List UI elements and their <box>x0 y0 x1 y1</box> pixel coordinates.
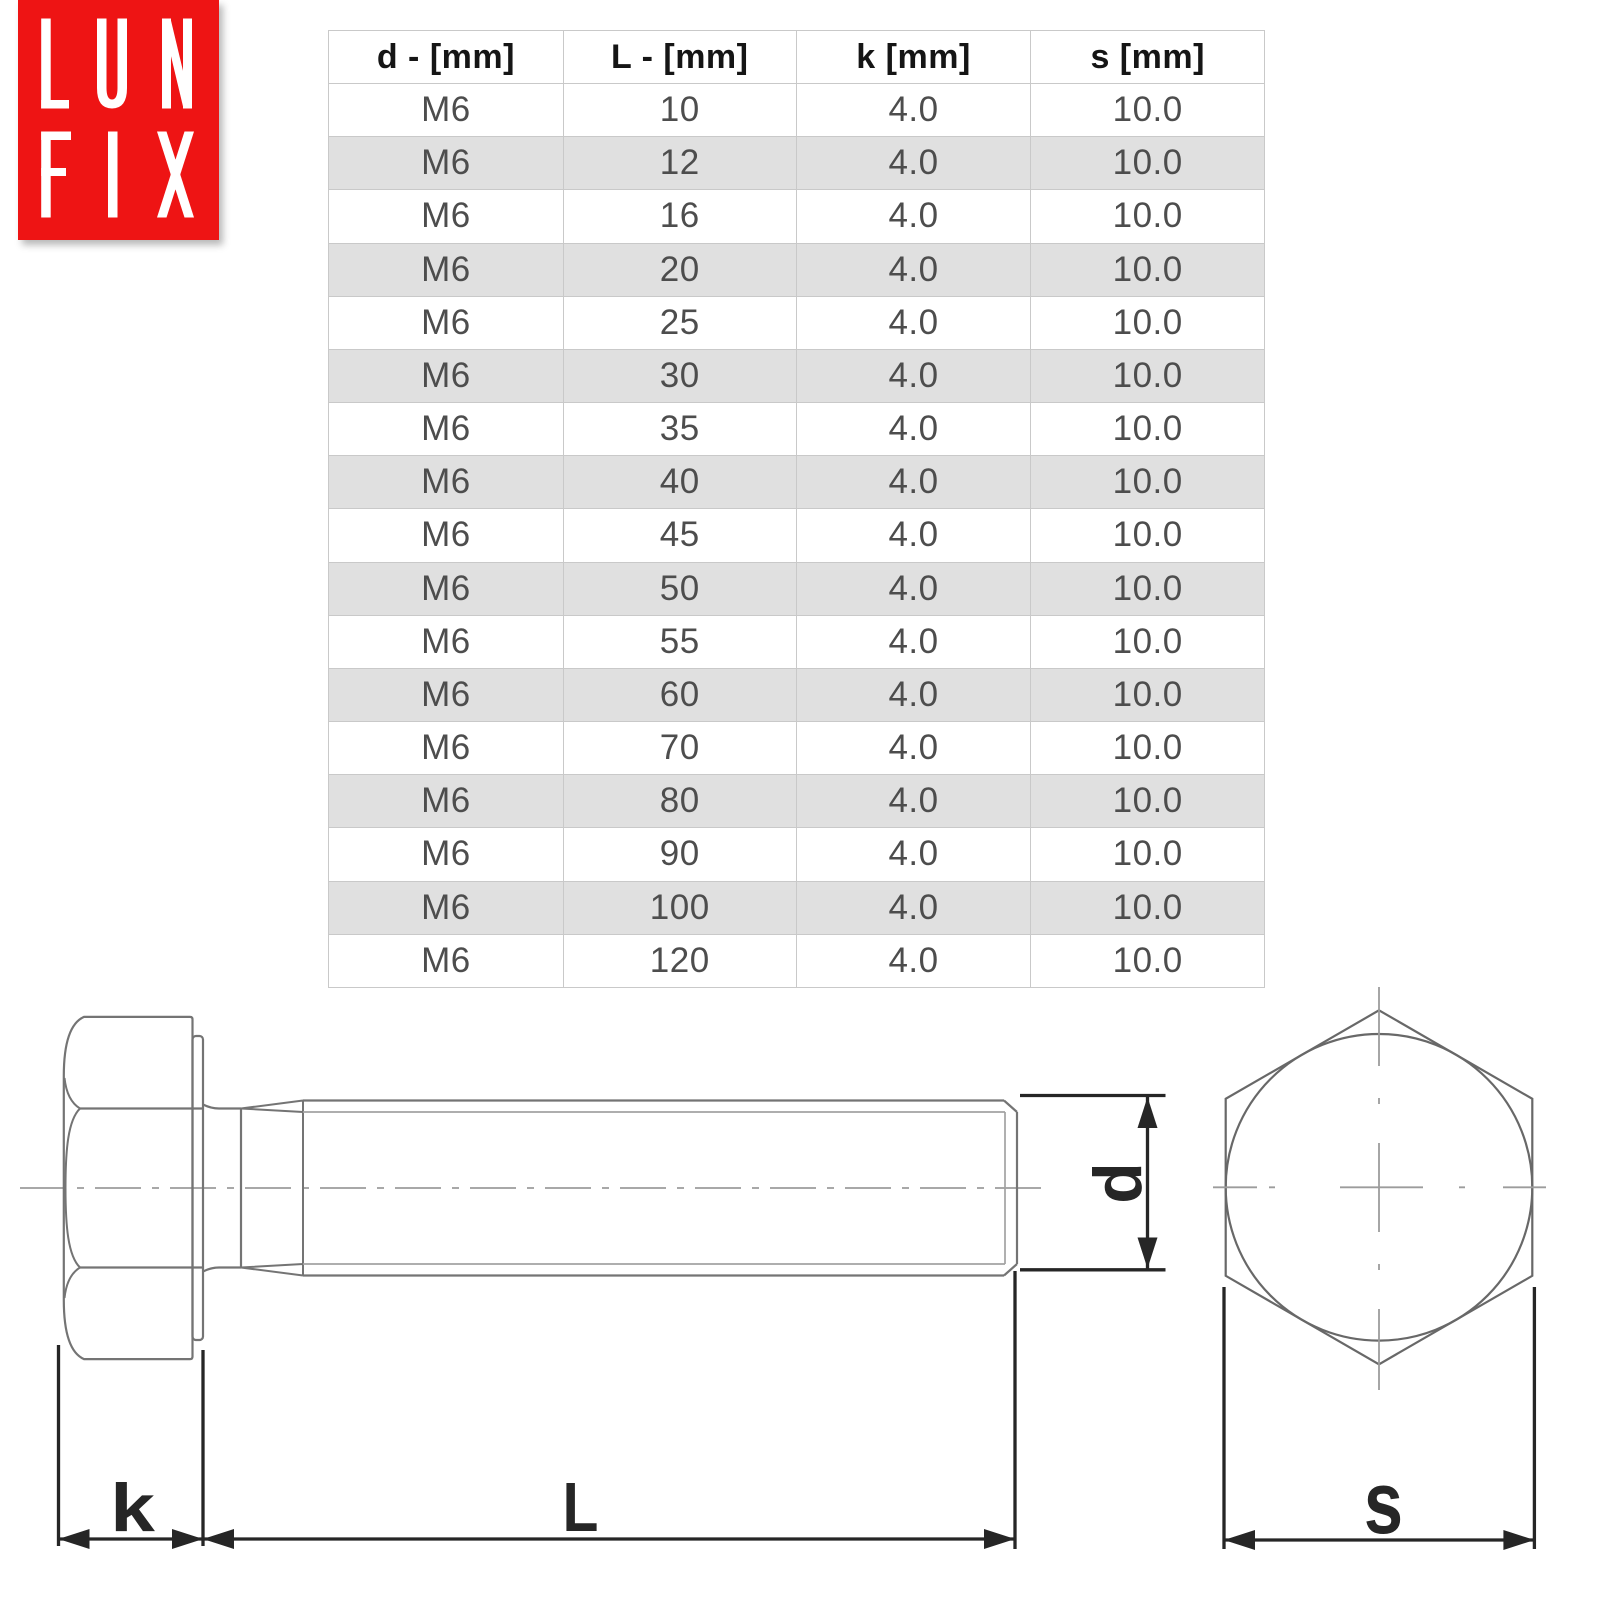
svg-text:d: d <box>1080 1162 1156 1204</box>
svg-text:s: s <box>1364 1453 1403 1551</box>
svg-text:k: k <box>110 1470 155 1546</box>
svg-text:L: L <box>563 1467 599 1546</box>
